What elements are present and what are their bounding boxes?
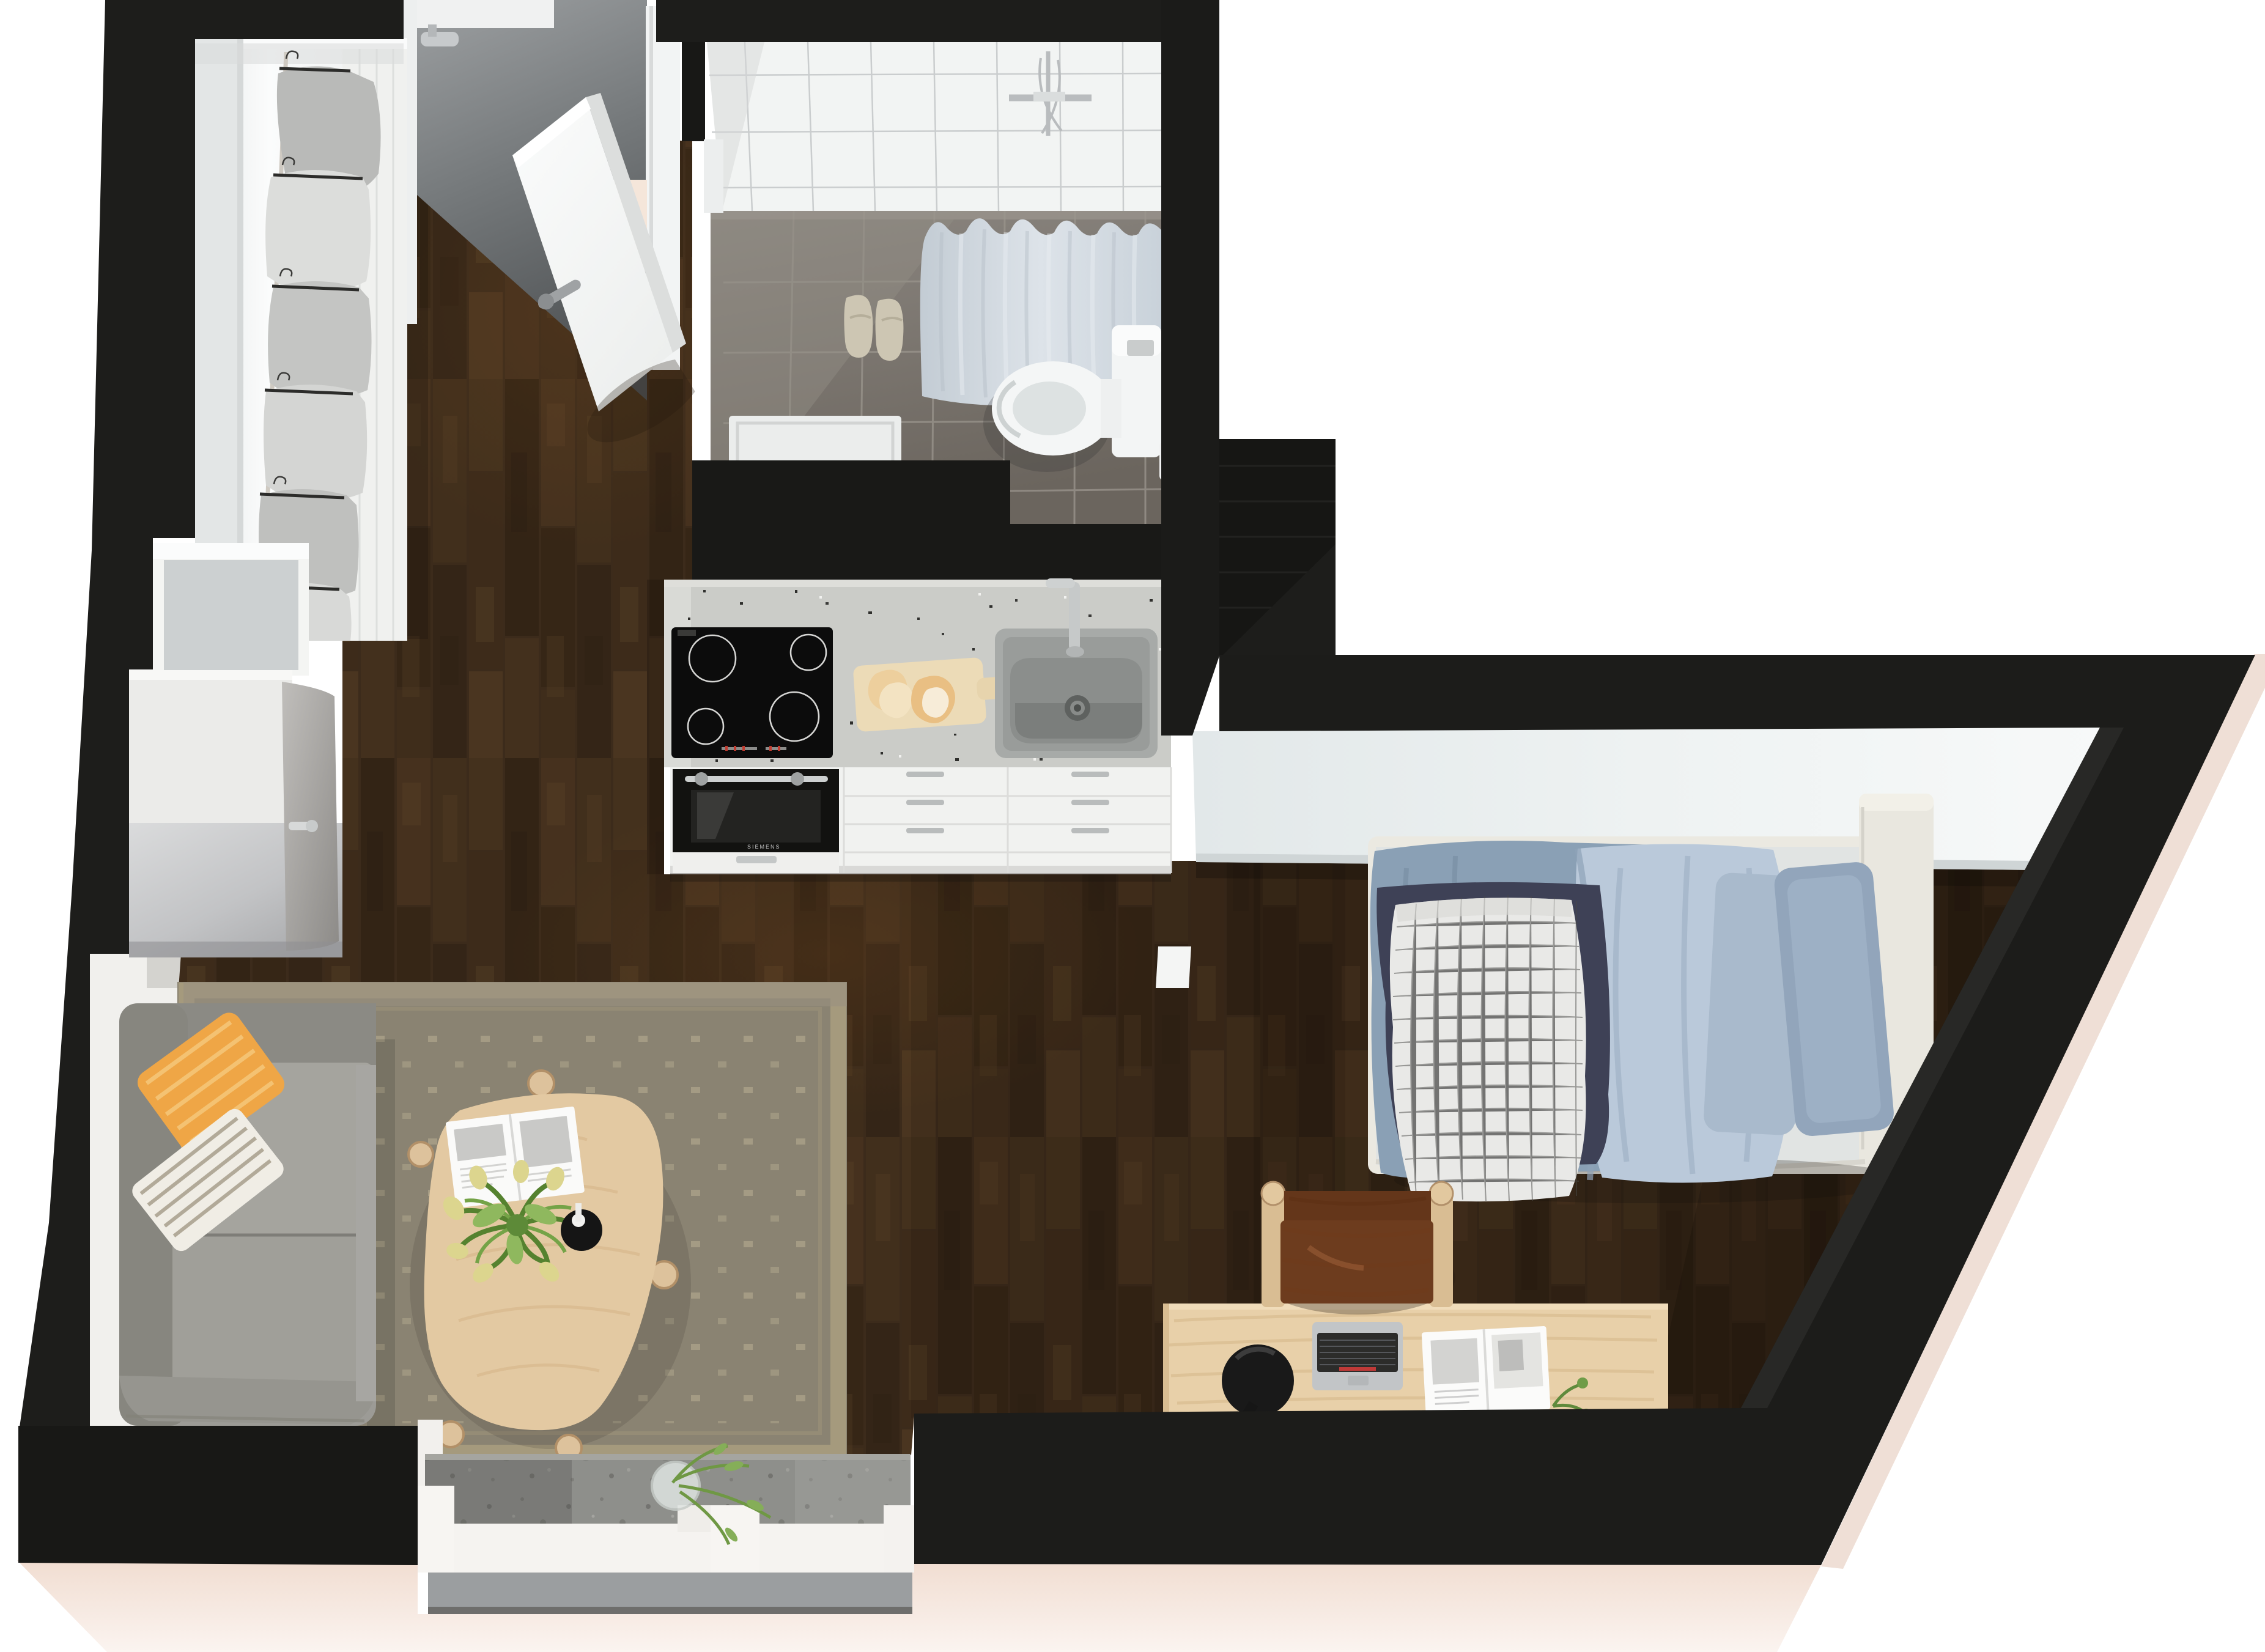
svg-text:SIEMENS: SIEMENS xyxy=(747,844,781,850)
